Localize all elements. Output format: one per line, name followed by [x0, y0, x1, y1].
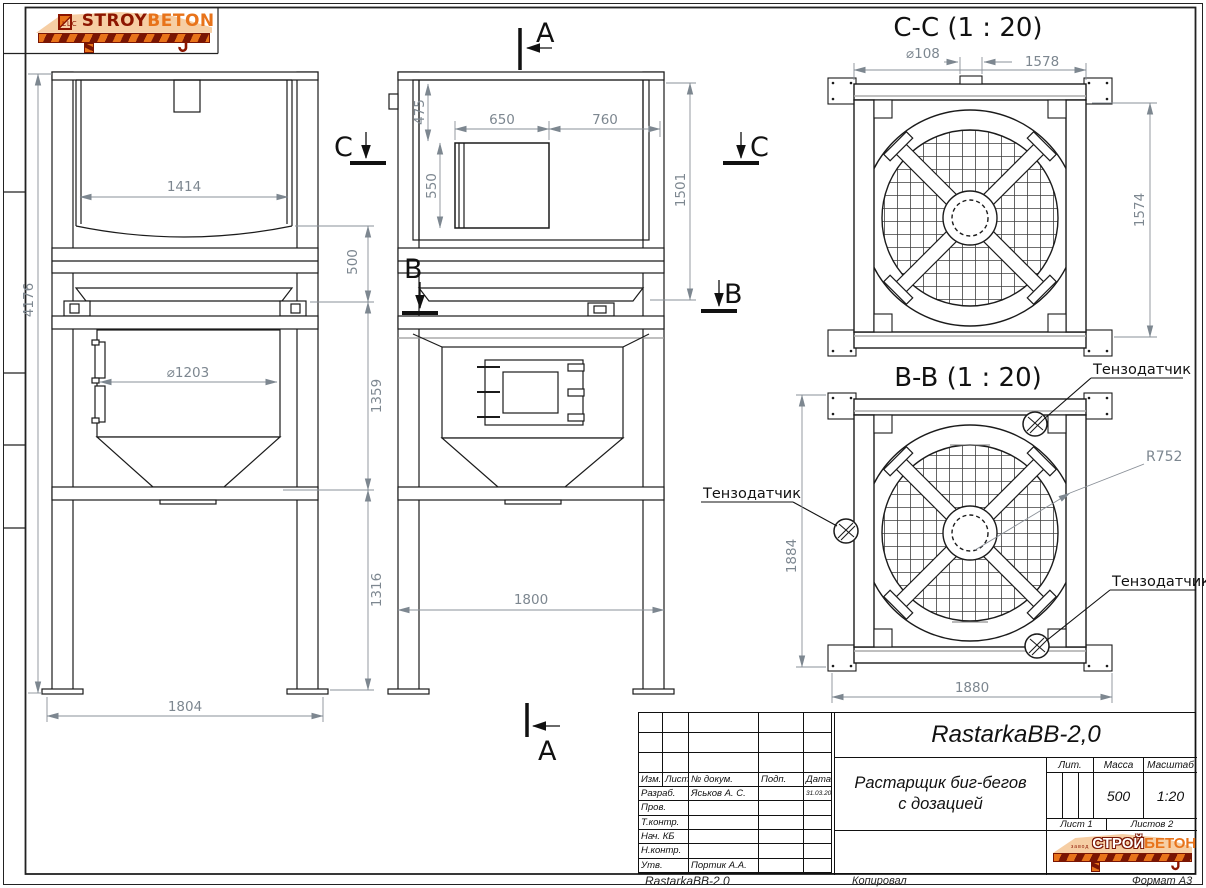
marker-c-right: C [750, 132, 769, 163]
name-razrab: Яськов А. С. [689, 787, 759, 801]
doc-name: Растарщик биг-беговс дозацией [834, 758, 1046, 831]
marker-b-left: B [404, 254, 423, 285]
dim-1501: 1501 [673, 173, 689, 207]
dim-475: 475 [412, 99, 428, 125]
section-cc-title: C-C (1 : 20) [893, 13, 1042, 43]
crane-hook-icon [178, 41, 190, 53]
scale-value: 1:20 [1143, 773, 1197, 819]
footer-format: Формат А3 [1132, 875, 1192, 887]
dim-4176: 4176 [21, 283, 37, 317]
side-view [42, 72, 328, 694]
stroybeton-logo-small: завод СТРОЙ БЕТОН [1049, 833, 1196, 873]
dim-r752: R752 [1146, 449, 1182, 465]
role-utv: Утв. [639, 859, 689, 873]
col-list: Лист [663, 773, 689, 787]
load-cell-label-bottom: Тензодатчик [1111, 574, 1206, 590]
crane-hook-icon [1171, 860, 1182, 873]
col-podp: Подп. [759, 773, 804, 787]
dim-1414: 1414 [167, 179, 201, 195]
dim-650: 650 [489, 112, 515, 128]
section-bb [701, 378, 1196, 703]
marker-a-top: A [536, 18, 555, 49]
dim-1880: 1880 [955, 680, 989, 696]
logo-crane-column [84, 43, 94, 53]
lit-label: Лит. [1046, 758, 1093, 773]
col-izm: Изм. [639, 773, 663, 787]
logo-beton: БЕТОН [1144, 835, 1196, 852]
scale-label: Масштаб [1143, 758, 1197, 773]
dim-760: 760 [592, 112, 618, 128]
logo-stroy: СТРОЙ [1092, 835, 1144, 852]
dim-1574: 1574 [1132, 193, 1148, 227]
doc-designation: RastarkaBB-2,0 [834, 713, 1197, 758]
title-block: Изм. Лист № докум. Подп. Дата Разраб. Яс… [638, 712, 1196, 874]
logo-beton: BETON [147, 11, 214, 31]
sheets-total: Листов 2 [1106, 819, 1197, 831]
drawing-sheet: 4176 1414 500 ⌀1203 1359 1316 1804 [0, 0, 1206, 888]
dim-1316: 1316 [369, 573, 385, 607]
role-razrab: Разраб. [639, 787, 689, 801]
section-bb-title: B-B (1 : 20) [894, 363, 1042, 393]
dim-1203: ⌀1203 [167, 365, 209, 381]
dim-1578: 1578 [1025, 54, 1059, 70]
title-block-logo-cell: завод СТРОЙ БЕТОН [1046, 831, 1197, 875]
section-cc [828, 57, 1157, 356]
role-tkontr: Т.контр. [639, 816, 689, 830]
marker-a-bottom: A [538, 736, 557, 767]
role-nkontr: Н.контр. [639, 844, 689, 858]
dim-1884: 1884 [784, 539, 800, 573]
dim-1359: 1359 [369, 379, 385, 413]
role-prov: Пров. [639, 801, 689, 815]
logo-llc: LLC [62, 20, 78, 28]
mass-value: 500 [1093, 773, 1143, 819]
logo-zavod: завод [1071, 844, 1089, 850]
col-ndoc: № докум. [689, 773, 759, 787]
date-razrab: 31.03.2014 [804, 787, 832, 801]
dim-500: 500 [345, 249, 361, 275]
logo-crane-column [1091, 862, 1100, 872]
role-nachkb: Нач. КБ [639, 830, 689, 844]
mass-label: Масса [1093, 758, 1143, 773]
dim-108: ⌀108 [906, 46, 940, 62]
name-utv: Портик А.А. [689, 859, 759, 873]
marker-b-right: B [724, 279, 743, 310]
footer-copied: Копировал [852, 875, 907, 887]
load-cell-label-left: Тензодатчик [702, 486, 801, 502]
dim-1800: 1800 [514, 592, 548, 608]
marker-c-left: C [334, 132, 353, 163]
lit-cells [1046, 773, 1093, 819]
revision-table: Изм. Лист № докум. Подп. Дата Разраб. Яс… [639, 713, 834, 873]
dim-1804: 1804 [168, 699, 202, 715]
dim-550: 550 [424, 173, 440, 199]
load-cell-label-top: Тензодатчик [1092, 362, 1191, 378]
logo-stroy: STROY [82, 11, 148, 31]
col-data: Дата [804, 773, 832, 787]
stroybeton-logo: LLC STROY BETON [30, 10, 218, 53]
footer-doc-code: RastarkaBB-2.0 [645, 874, 730, 888]
sheet-number: Лист 1 [1046, 819, 1106, 831]
